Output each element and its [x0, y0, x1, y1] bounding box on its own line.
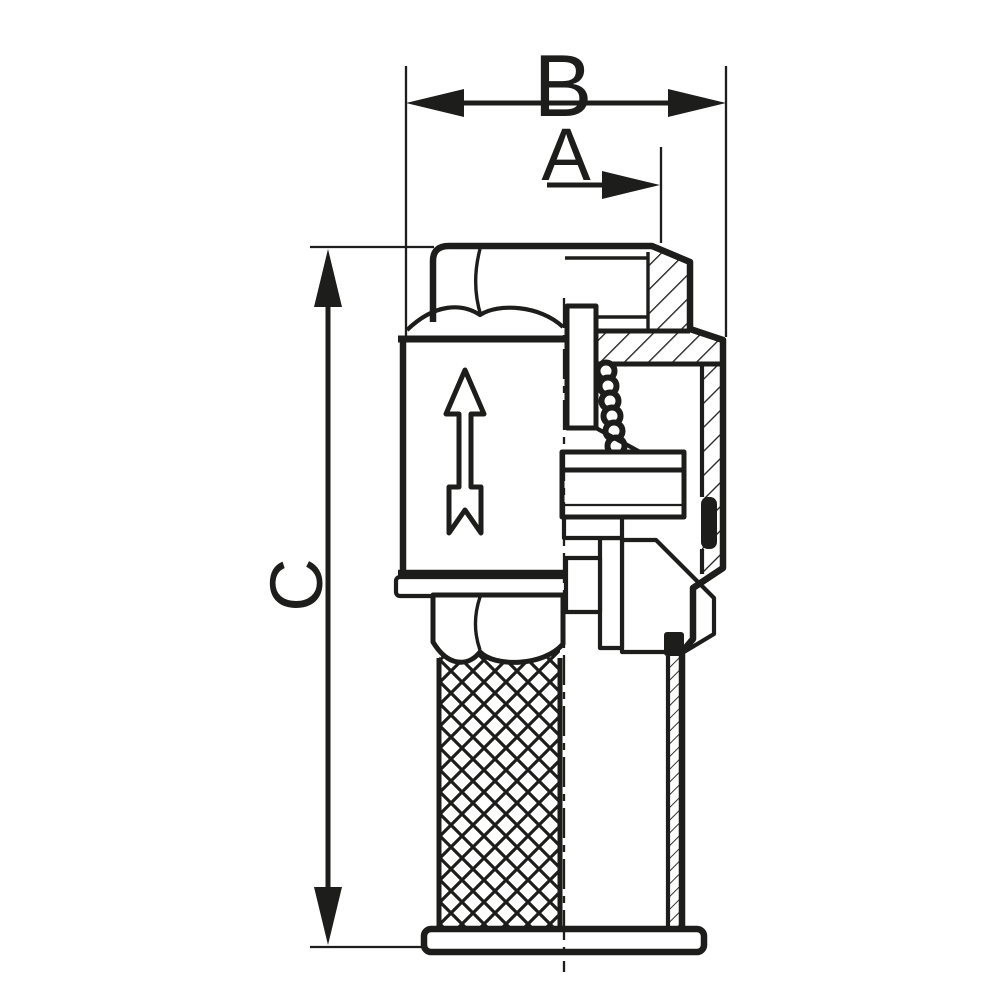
poppet-upper-stem: [567, 306, 596, 428]
poppet-step: [564, 517, 622, 538]
dim-a-arrow-icon: [602, 171, 660, 199]
dim-b-arrow-left-icon: [406, 89, 464, 117]
dim-c-label: C: [255, 558, 338, 611]
dimension-a: A: [541, 113, 661, 243]
dim-b-arrow-right-icon: [668, 89, 726, 117]
dim-a-label: A: [541, 113, 591, 196]
valve-body: [396, 249, 690, 596]
technical-drawing-page: B A C: [0, 0, 1000, 1000]
check-valve-section-drawing: B A C: [0, 0, 1000, 1000]
strainer-mesh: [439, 648, 560, 932]
dim-c-arrow-top-icon: [314, 249, 342, 307]
hex-nut-outline: [433, 595, 563, 662]
poppet-lower-stem: [600, 538, 622, 648]
poppet-disc: [562, 452, 684, 517]
top-nut-facet-line: [476, 249, 481, 316]
strainer-hex-nut: [433, 595, 563, 662]
dim-c-arrow-bottom-icon: [314, 887, 342, 945]
flow-direction-arrow-icon: [446, 370, 484, 533]
strainer-mesh-crosshatch: [439, 648, 560, 932]
seal-ring: [701, 497, 717, 549]
stem-guide-block: [566, 558, 600, 612]
